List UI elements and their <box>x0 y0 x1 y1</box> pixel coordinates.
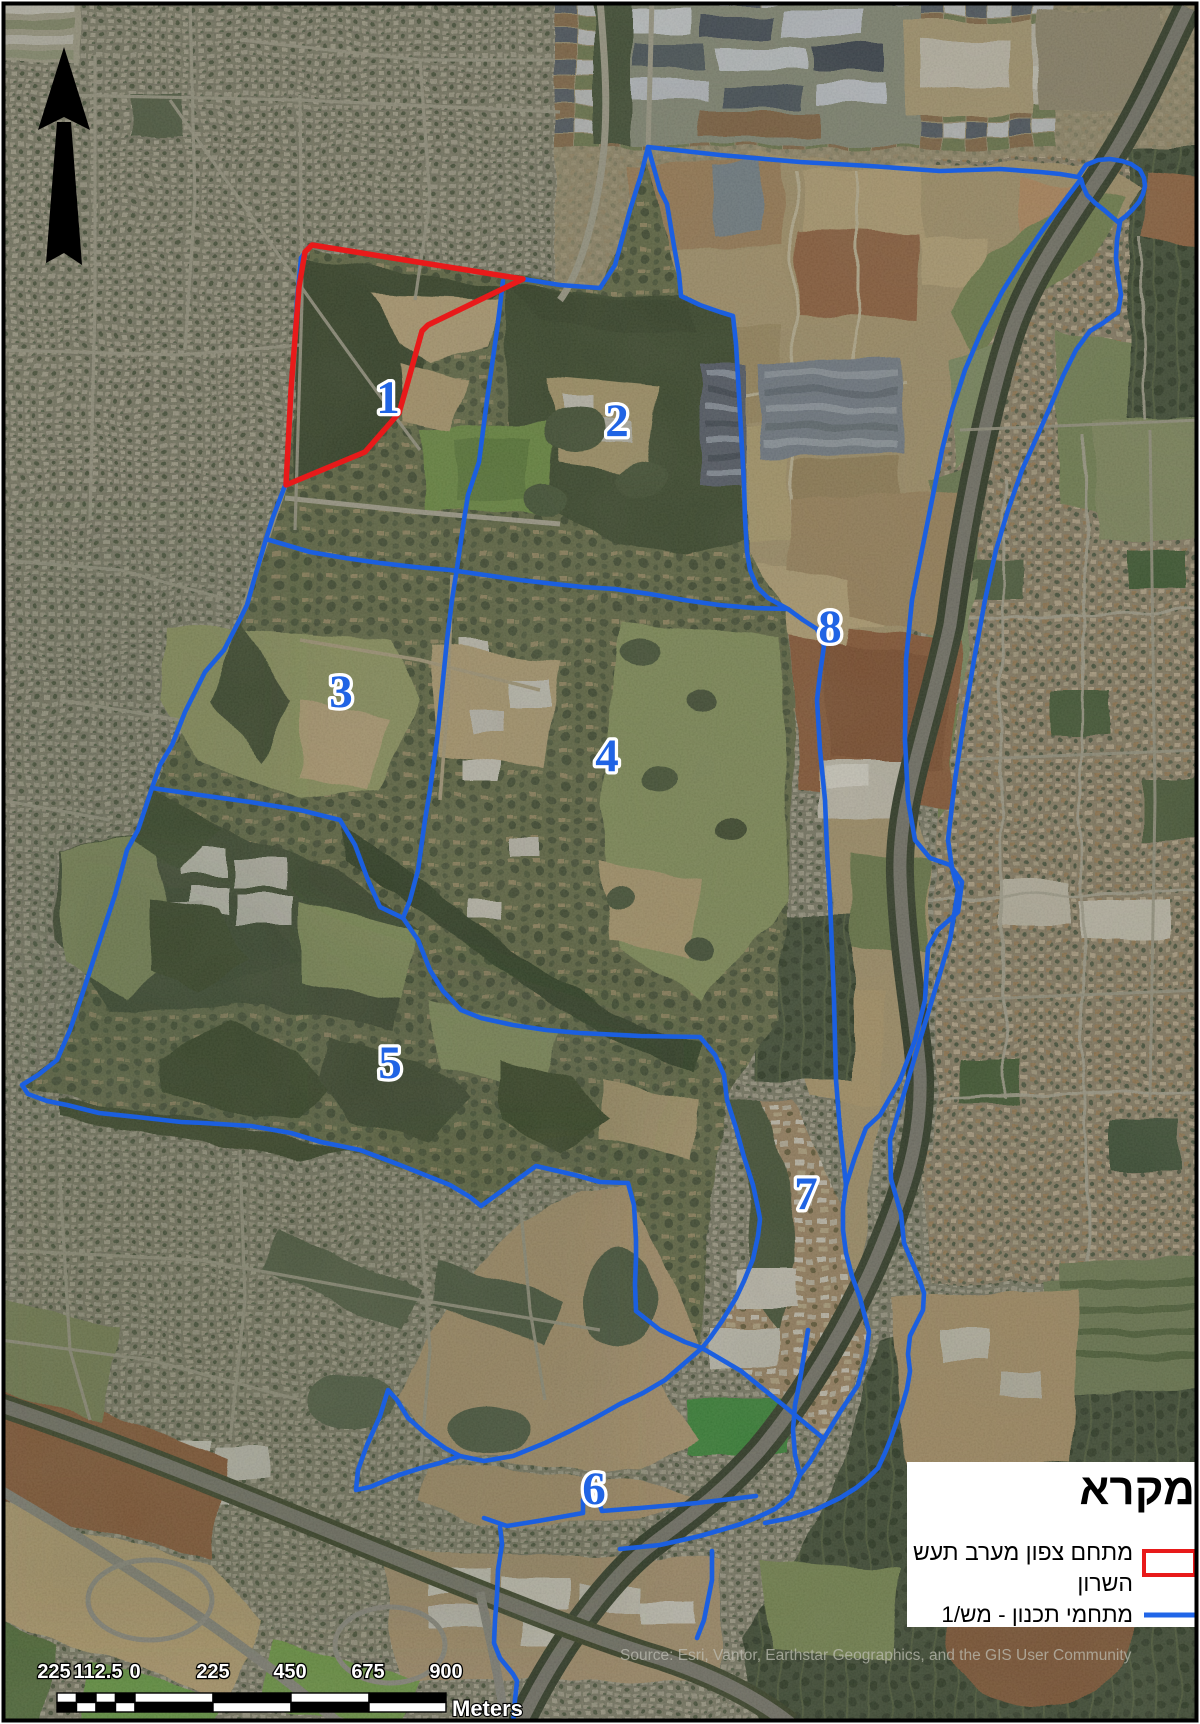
svg-text:מתחמי תכנון - מש/1: מתחמי תכנון - מש/1 <box>941 1602 1133 1627</box>
svg-text:3: 3 <box>329 666 353 718</box>
svg-text:450: 450 <box>273 1661 306 1683</box>
svg-text:Source: Esri, Vantor, Earthsta: Source: Esri, Vantor, Earthstar Geograph… <box>620 1647 1132 1664</box>
svg-text:5: 5 <box>378 1037 402 1089</box>
svg-text:0: 0 <box>129 1661 140 1683</box>
svg-text:1: 1 <box>376 372 400 424</box>
svg-text:8: 8 <box>818 601 842 653</box>
svg-text:6: 6 <box>582 1463 606 1515</box>
svg-text:מתחם צפון מערב תעש: מתחם צפון מערב תעש <box>913 1539 1133 1565</box>
svg-text:4: 4 <box>595 730 619 782</box>
svg-text:מקרא: מקרא <box>1079 1465 1195 1514</box>
svg-text:2: 2 <box>605 395 629 447</box>
svg-text:225: 225 <box>196 1661 229 1683</box>
svg-text:112.5: 112.5 <box>74 1661 123 1683</box>
svg-text:675: 675 <box>351 1661 384 1683</box>
svg-text:Meters: Meters <box>452 1696 523 1721</box>
svg-text:7: 7 <box>794 1168 818 1220</box>
svg-text:225: 225 <box>37 1661 70 1683</box>
svg-text:השרון: השרון <box>1077 1570 1133 1596</box>
svg-text:900: 900 <box>429 1661 462 1683</box>
